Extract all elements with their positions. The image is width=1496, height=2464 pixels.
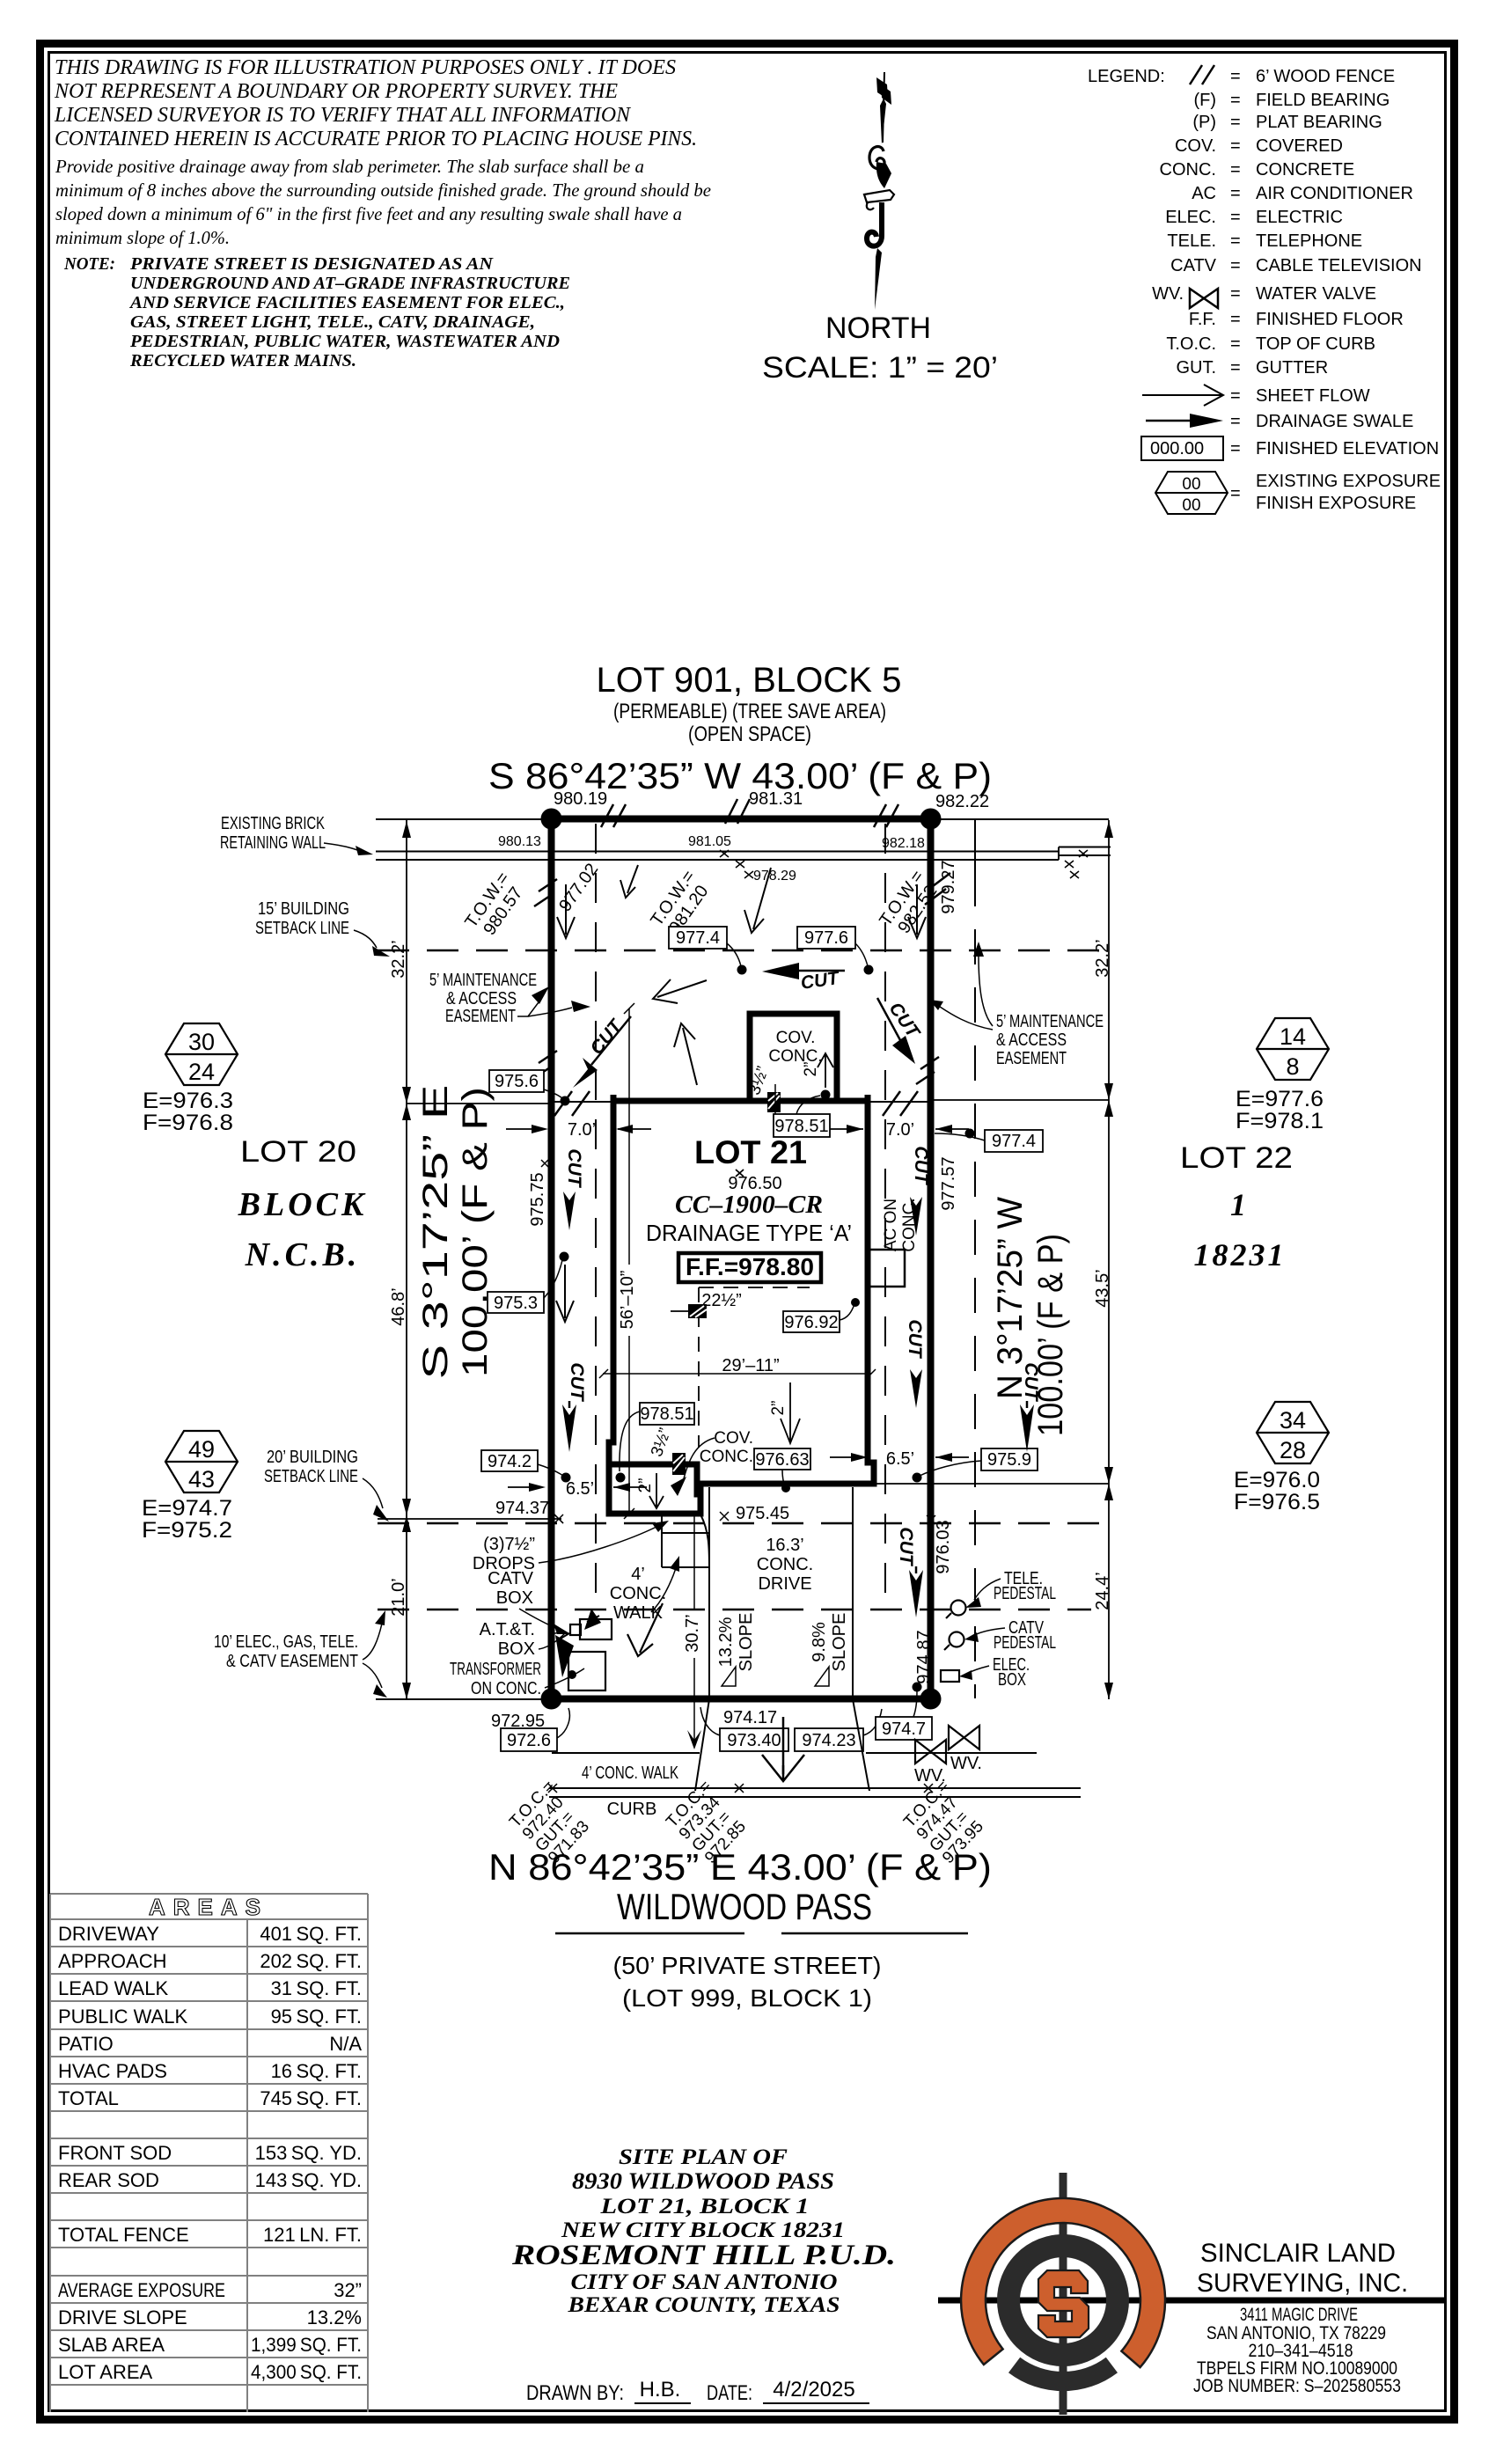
svg-text:974.7: 974.7 — [882, 1720, 926, 1739]
svg-text:975.45: 975.45 — [736, 1504, 789, 1523]
svg-text:977.57: 977.57 — [939, 1156, 958, 1210]
svg-text:CUT: CUT — [911, 1146, 931, 1185]
svg-text:143 SQ. YD.: 143 SQ. YD. — [255, 2169, 362, 2191]
svg-text:30.7’: 30.7’ — [683, 1614, 702, 1652]
svg-text:CONC.: CONC. — [1160, 160, 1216, 180]
svg-text:TOTAL FENCE: TOTAL FENCE — [58, 2224, 189, 2246]
svg-text:14: 14 — [1280, 1023, 1306, 1050]
svg-text:TOP OF CURB: TOP OF CURB — [1256, 334, 1375, 354]
svg-text:153 SQ. YD.: 153 SQ. YD. — [255, 2142, 362, 2164]
svg-text:975.6: 975.6 — [495, 1072, 539, 1091]
svg-text:CABLE TELEVISION: CABLE TELEVISION — [1256, 256, 1422, 275]
svg-text:975.9: 975.9 — [987, 1450, 1031, 1470]
svg-text:=: = — [1230, 484, 1241, 503]
svg-text:976.63: 976.63 — [755, 1450, 809, 1470]
svg-text:00: 00 — [1182, 496, 1200, 515]
svg-text:31 SQ. FT.: 31 SQ. FT. — [271, 1977, 362, 1999]
svg-text:973.40: 973.40 — [727, 1731, 781, 1750]
svg-text:LOT 22: LOT 22 — [1180, 1141, 1293, 1175]
svg-text:N 86°42’35” E 43.00’ (F & P): N 86°42’35” E 43.00’ (F & P) — [488, 1846, 992, 1888]
svg-text:(LOT 999, BLOCK 1): (LOT 999, BLOCK 1) — [622, 1984, 872, 2012]
svg-text:121 LN. FT.: 121 LN. FT. — [263, 2224, 362, 2246]
svg-text:977.4: 977.4 — [676, 928, 720, 948]
svg-text:9.8%: 9.8% — [810, 1622, 829, 1662]
svg-text:=: = — [1230, 184, 1241, 203]
svg-text:DATE:: DATE: — [707, 2381, 752, 2405]
svg-text:DRIVEWAY: DRIVEWAY — [58, 1923, 159, 1945]
svg-text:DRIVE SLOPE: DRIVE SLOPE — [58, 2306, 187, 2328]
svg-text:5’ MAINTENANCE: 5’ MAINTENANCE — [996, 1012, 1104, 1031]
svg-text:974.2: 974.2 — [488, 1452, 532, 1471]
svg-text:974.37: 974.37 — [495, 1499, 549, 1518]
svg-text:202 SQ. FT.: 202 SQ. FT. — [260, 1950, 362, 1972]
svg-text:CONC.: CONC. — [757, 1555, 813, 1574]
svg-text:DRAINAGE SWALE: DRAINAGE SWALE — [1256, 412, 1413, 431]
svg-text:TELE.: TELE. — [1167, 231, 1216, 251]
svg-text:UNDERGROUND AND AT–GRADE INFRA: UNDERGROUND AND AT–GRADE INFRASTRUCTURE — [130, 274, 570, 293]
svg-text:32”: 32” — [334, 2279, 362, 2301]
svg-text:NEW CITY BLOCK 18231: NEW CITY BLOCK 18231 — [561, 2218, 845, 2242]
svg-text:5’ MAINTENANCE: 5’ MAINTENANCE — [429, 971, 537, 990]
svg-text:SHEET FLOW: SHEET FLOW — [1256, 386, 1370, 406]
svg-text:RETAINING WALL: RETAINING WALL — [220, 833, 326, 853]
svg-text:=: = — [1230, 113, 1241, 132]
svg-text:EXISTING BRICK: EXISTING BRICK — [221, 814, 325, 833]
svg-text:=: = — [1230, 439, 1241, 458]
svg-text:NOT REPRESENT A BOUNDARY OR PR: NOT REPRESENT A BOUNDARY OR PROPERTY SUR… — [54, 80, 618, 103]
svg-text:46.8’: 46.8’ — [389, 1287, 408, 1325]
svg-text:=: = — [1230, 412, 1241, 431]
svg-text:H.B.: H.B. — [640, 2378, 681, 2402]
svg-text:981.05: 981.05 — [688, 834, 731, 849]
svg-text:& ACCESS: & ACCESS — [996, 1030, 1067, 1050]
svg-text:=: = — [1230, 284, 1241, 304]
svg-text:6’ WOOD FENCE: 6’ WOOD FENCE — [1256, 67, 1395, 86]
svg-text:(PERMEABLE) (TREE SAVE AREA): (PERMEABLE) (TREE SAVE AREA) — [613, 700, 886, 723]
svg-text:978.29: 978.29 — [753, 869, 796, 884]
svg-text:APPROACH: APPROACH — [58, 1950, 166, 1972]
svg-text:E=976.3: E=976.3 — [143, 1089, 233, 1113]
svg-text:28: 28 — [1280, 1437, 1306, 1463]
svg-text:2”: 2” — [802, 1062, 820, 1077]
svg-text:DRAWN BY:: DRAWN BY: — [526, 2381, 624, 2405]
svg-text:& ACCESS: & ACCESS — [446, 989, 517, 1008]
svg-text:43: 43 — [188, 1466, 215, 1492]
svg-text:974.17: 974.17 — [723, 1708, 777, 1727]
svg-text:976.92: 976.92 — [784, 1313, 838, 1332]
svg-text:CURB: CURB — [607, 1800, 657, 1819]
svg-text:WV.: WV. — [1152, 284, 1184, 304]
svg-text:E=974.7: E=974.7 — [142, 1496, 232, 1521]
svg-text:00: 00 — [1182, 475, 1200, 494]
svg-text:8: 8 — [1286, 1053, 1299, 1080]
svg-text:SCALE: 1” = 20’: SCALE: 1” = 20’ — [762, 351, 998, 385]
svg-text:ON CONC.: ON CONC. — [471, 1679, 541, 1698]
svg-text:DRAINAGE TYPE ‘A’: DRAINAGE TYPE ‘A’ — [646, 1220, 852, 1246]
svg-text:GUTTER: GUTTER — [1256, 358, 1328, 378]
svg-text:CONC.: CONC. — [610, 1584, 666, 1603]
svg-text:SLAB AREA: SLAB AREA — [58, 2334, 165, 2356]
svg-text:PEDESTAL: PEDESTAL — [994, 1584, 1056, 1603]
svg-text:PUBLIC WALK: PUBLIC WALK — [58, 2006, 187, 2028]
svg-text:SITE PLAN OF: SITE PLAN OF — [619, 2145, 788, 2169]
svg-text:LEGEND:: LEGEND: — [1088, 67, 1165, 86]
svg-text:22½”: 22½” — [701, 1291, 742, 1310]
svg-text:CUT: CUT — [586, 1015, 627, 1059]
svg-text:FINISHED ELEVATION: FINISHED ELEVATION — [1256, 439, 1439, 458]
svg-text:=: = — [1230, 160, 1241, 180]
svg-text:PEDESTAL: PEDESTAL — [994, 1633, 1056, 1653]
svg-text:13.2%: 13.2% — [307, 2306, 362, 2328]
svg-text:BLOCK: BLOCK — [238, 1186, 368, 1223]
svg-text:4,300 SQ. FT.: 4,300 SQ. FT. — [251, 2361, 362, 2383]
svg-text:HVAC PADS: HVAC PADS — [58, 2060, 167, 2082]
svg-text:F.F.: F.F. — [1189, 310, 1216, 329]
svg-text:E=977.6: E=977.6 — [1236, 1087, 1324, 1111]
svg-text:24: 24 — [188, 1059, 215, 1085]
svg-text:FIELD BEARING: FIELD BEARING — [1256, 91, 1390, 110]
svg-text:974.23: 974.23 — [802, 1731, 855, 1750]
svg-text:CITY OF SAN ANTONIO: CITY OF SAN ANTONIO — [571, 2270, 838, 2294]
svg-text:3411 MAGIC DRIVE: 3411 MAGIC DRIVE — [1240, 2305, 1358, 2325]
svg-text:95 SQ. FT.: 95 SQ. FT. — [271, 2006, 362, 2028]
svg-text:F=976.5: F=976.5 — [1234, 1490, 1320, 1514]
svg-text:7.0’: 7.0’ — [568, 1120, 596, 1140]
svg-text:SETBACK LINE: SETBACK LINE — [255, 919, 349, 938]
svg-text:8930 WILDWOOD PASS: 8930 WILDWOOD PASS — [572, 2168, 834, 2194]
svg-text:30: 30 — [188, 1029, 215, 1055]
svg-text:ELEC.: ELEC. — [1165, 208, 1216, 227]
svg-text:=: = — [1230, 334, 1241, 354]
svg-text:=: = — [1230, 231, 1241, 251]
svg-text:ROSEMONT HILL P.U.D.: ROSEMONT HILL P.U.D. — [511, 2240, 896, 2271]
svg-text:AND SERVICE FACILITIES EASEMEN: AND SERVICE FACILITIES EASEMENT FOR ELEC… — [128, 293, 565, 312]
svg-text:CUT: CUT — [1021, 1362, 1041, 1402]
svg-text:745 SQ. FT.: 745 SQ. FT. — [260, 2087, 362, 2109]
svg-text:WATER VALVE: WATER VALVE — [1256, 284, 1376, 304]
svg-text:Provide positive drainage away: Provide positive drainage away from slab… — [55, 156, 644, 177]
svg-text:F=975.2: F=975.2 — [142, 1518, 232, 1543]
svg-text:2”: 2” — [636, 1478, 655, 1493]
svg-text:(P): (P) — [1192, 113, 1216, 132]
svg-text:SLOPE: SLOPE — [737, 1613, 756, 1672]
svg-text:49: 49 — [188, 1436, 215, 1463]
svg-text:REAR SOD: REAR SOD — [58, 2169, 159, 2191]
svg-text:PATIO: PATIO — [58, 2033, 114, 2055]
svg-text:SURVEYING, INC.: SURVEYING, INC. — [1197, 2269, 1408, 2298]
svg-text:100.00’ (F & P): 100.00’ (F & P) — [456, 1087, 495, 1377]
svg-text:=: = — [1230, 310, 1241, 329]
svg-text:=: = — [1230, 136, 1241, 156]
svg-text:PRIVATE STREET IS DESIGNATED A: PRIVATE STREET IS DESIGNATED AS AN — [129, 254, 495, 274]
svg-text:=: = — [1230, 358, 1241, 378]
svg-text:LOT AREA: LOT AREA — [58, 2361, 153, 2383]
svg-text:18231: 18231 — [1194, 1237, 1287, 1272]
svg-text:N.C.B.: N.C.B. — [245, 1236, 361, 1273]
svg-text:982.18: 982.18 — [882, 836, 925, 851]
svg-text:AVERAGE EXPOSURE: AVERAGE EXPOSURE — [58, 2279, 225, 2301]
svg-text:16.3’: 16.3’ — [766, 1536, 803, 1555]
svg-text:977.4: 977.4 — [992, 1132, 1036, 1151]
svg-text:4’: 4’ — [631, 1565, 645, 1584]
svg-text:minimum slope of 1.0%.: minimum slope of 1.0%. — [55, 227, 230, 248]
svg-text:CUT: CUT — [905, 1319, 925, 1359]
svg-text:=: = — [1230, 256, 1241, 275]
svg-text:F.F.=978.80: F.F.=978.80 — [686, 1253, 814, 1280]
svg-text:FRONT SOD: FRONT SOD — [58, 2142, 172, 2164]
svg-text:29’–11”: 29’–11” — [722, 1356, 779, 1375]
svg-text:NORTH: NORTH — [825, 312, 931, 345]
svg-text:975.3: 975.3 — [494, 1294, 538, 1313]
svg-text:6.5’: 6.5’ — [566, 1479, 594, 1499]
svg-text:SLOPE: SLOPE — [830, 1613, 849, 1672]
svg-text:F=976.8: F=976.8 — [143, 1111, 233, 1135]
svg-text:GAS, STREET LIGHT, TELE., CATV: GAS, STREET LIGHT, TELE., CATV, DRAINAGE… — [130, 312, 535, 332]
svg-text:WV.: WV. — [950, 1754, 982, 1773]
svg-text:978.51: 978.51 — [774, 1117, 828, 1136]
svg-text:=: = — [1230, 67, 1241, 86]
svg-text:981.31: 981.31 — [749, 789, 803, 809]
svg-text:DROPS: DROPS — [473, 1554, 535, 1573]
svg-text:DRIVE: DRIVE — [758, 1574, 811, 1594]
svg-text:13.2%: 13.2% — [716, 1617, 736, 1667]
svg-text:COV.: COV. — [714, 1429, 753, 1448]
svg-text:980.19: 980.19 — [554, 789, 607, 809]
svg-text:15’ BUILDING: 15’ BUILDING — [258, 899, 349, 919]
svg-text:978.51: 978.51 — [640, 1404, 693, 1424]
svg-text:21.0’: 21.0’ — [389, 1578, 408, 1616]
svg-text:CUT: CUT — [799, 968, 841, 994]
svg-text:4/2/2025: 4/2/2025 — [773, 2378, 854, 2402]
svg-text:(3)7½”: (3)7½” — [483, 1535, 535, 1554]
svg-text:LEAD WALK: LEAD WALK — [58, 1977, 168, 1999]
svg-text:BOX: BOX — [998, 1670, 1026, 1690]
svg-text:CONTAINED HEREIN IS ACCURATE P: CONTAINED HEREIN IS ACCURATE PRIOR TO PL… — [55, 128, 697, 150]
svg-text:A.T.&T.: A.T.&T. — [480, 1620, 535, 1639]
svg-text:E=976.0: E=976.0 — [1234, 1468, 1320, 1492]
svg-text:LOT 21, BLOCK 1: LOT 21, BLOCK 1 — [599, 2195, 809, 2218]
svg-text:975.75: 975.75 — [528, 1172, 547, 1226]
svg-text:WILDWOOD PASS: WILDWOOD PASS — [617, 1886, 872, 1927]
svg-text:FINISHED FLOOR: FINISHED FLOOR — [1256, 310, 1404, 329]
svg-text:976.03: 976.03 — [934, 1520, 953, 1573]
svg-text:BEXAR COUNTY, TEXAS: BEXAR COUNTY, TEXAS — [567, 2293, 840, 2317]
svg-text:TOTAL: TOTAL — [58, 2087, 119, 2109]
svg-text:CONC.: CONC. — [700, 1448, 753, 1466]
svg-text:=: = — [1230, 386, 1241, 406]
svg-text:& CATV EASEMENT: & CATV EASEMENT — [226, 1652, 358, 1671]
svg-text:N/A: N/A — [329, 2033, 362, 2055]
svg-text:EXISTING EXPOSURE: EXISTING EXPOSURE — [1256, 472, 1441, 491]
svg-text:1: 1 — [1230, 1187, 1246, 1222]
svg-text:24.4’: 24.4’ — [1093, 1572, 1112, 1610]
svg-text:CC–1900–CR: CC–1900–CR — [675, 1191, 823, 1219]
svg-text:sloped down a minimum of 6" in: sloped down a minimum of 6" in the first… — [55, 203, 682, 224]
svg-text:AREAS: AREAS — [149, 1894, 268, 1920]
svg-text:LOT 901, BLOCK 5: LOT 901, BLOCK 5 — [597, 661, 902, 700]
svg-text:CUT: CUT — [896, 1527, 916, 1566]
svg-text:=: = — [1230, 208, 1241, 227]
svg-text:F=978.1: F=978.1 — [1236, 1109, 1324, 1133]
svg-text:T.O.C.: T.O.C. — [1166, 334, 1216, 354]
svg-text:10’ ELEC., GAS, TELE.: 10’ ELEC., GAS, TELE. — [214, 1632, 358, 1652]
svg-text:972.6: 972.6 — [507, 1731, 551, 1750]
svg-text:974.87: 974.87 — [914, 1630, 934, 1683]
svg-text:LICENSED SURVEYOR IS TO VERIFY: LICENSED SURVEYOR IS TO VERIFY THAT ALL … — [54, 104, 632, 127]
svg-text:ELECTRIC: ELECTRIC — [1256, 208, 1343, 227]
svg-text:EASEMENT: EASEMENT — [996, 1049, 1067, 1068]
svg-text:980.13: 980.13 — [498, 834, 541, 849]
svg-text:CUT: CUT — [567, 1362, 587, 1402]
svg-text:SETBACK LINE: SETBACK LINE — [264, 1467, 358, 1486]
svg-text:EASEMENT: EASEMENT — [445, 1007, 516, 1026]
svg-text:979.27: 979.27 — [939, 860, 958, 913]
svg-text:100.00’ (F & P): 100.00’ (F & P) — [1031, 1234, 1070, 1436]
svg-text:NOTE:: NOTE: — [63, 254, 115, 274]
svg-text:JOB NUMBER: S–202580553: JOB NUMBER: S–202580553 — [1193, 2376, 1401, 2396]
svg-text:401 SQ. FT.: 401 SQ. FT. — [260, 1923, 362, 1945]
svg-text:AC: AC — [1192, 184, 1216, 203]
svg-text:2”: 2” — [769, 1401, 788, 1416]
svg-text:6.5’: 6.5’ — [886, 1449, 914, 1469]
svg-text:SINCLAIR LAND: SINCLAIR LAND — [1200, 2239, 1396, 2268]
svg-text:982.22: 982.22 — [935, 792, 989, 811]
svg-text:PLAT BEARING: PLAT BEARING — [1256, 113, 1382, 132]
svg-text:CUT: CUT — [564, 1148, 584, 1188]
svg-text:COVERED: COVERED — [1256, 136, 1343, 156]
svg-text:4’ CONC. WALK: 4’ CONC. WALK — [582, 1764, 678, 1783]
svg-text:AC ON: AC ON — [882, 1199, 900, 1251]
svg-text:56’–10”: 56’–10” — [618, 1271, 637, 1330]
svg-text:1,399 SQ. FT.: 1,399 SQ. FT. — [251, 2334, 362, 2356]
svg-text:(50’ PRIVATE STREET): (50’ PRIVATE STREET) — [613, 1952, 882, 1979]
svg-text:=: = — [1230, 91, 1241, 110]
svg-text:RECYCLED WATER MAINS.: RECYCLED WATER MAINS. — [129, 351, 356, 370]
svg-text:(OPEN SPACE): (OPEN SPACE) — [688, 722, 811, 746]
svg-text:THIS DRAWING IS FOR ILLUSTRATI: THIS DRAWING IS FOR ILLUSTRATION PURPOSE… — [55, 56, 676, 79]
svg-text:COV.: COV. — [1175, 136, 1216, 156]
svg-text:LOT 20: LOT 20 — [240, 1135, 356, 1169]
svg-text:FINISH EXPOSURE: FINISH EXPOSURE — [1256, 494, 1416, 513]
svg-text:7.0’: 7.0’ — [886, 1120, 914, 1140]
svg-text:AIR CONDITIONER: AIR CONDITIONER — [1256, 184, 1413, 203]
svg-text:GUT.: GUT. — [1176, 358, 1216, 378]
svg-text:977.6: 977.6 — [804, 928, 848, 948]
svg-text:32.2’: 32.2’ — [1093, 939, 1112, 977]
svg-text:TRANSFORMER: TRANSFORMER — [450, 1660, 541, 1679]
svg-text:000.00: 000.00 — [1150, 439, 1204, 458]
svg-text:CONCRETE: CONCRETE — [1256, 160, 1354, 180]
svg-text:32.2’: 32.2’ — [389, 940, 408, 978]
svg-text:PEDESTRIAN, PUBLIC WATER, WAST: PEDESTRIAN, PUBLIC WATER, WASTEWATER AND — [129, 332, 560, 351]
svg-text:43.5’: 43.5’ — [1093, 1269, 1112, 1307]
svg-text:20’ BUILDING: 20’ BUILDING — [267, 1448, 358, 1467]
svg-text:CATV: CATV — [1170, 256, 1217, 275]
svg-text:3½”: 3½” — [648, 1426, 675, 1459]
svg-text:BOX: BOX — [498, 1639, 535, 1659]
svg-text:TELEPHONE: TELEPHONE — [1256, 231, 1362, 251]
svg-text:BOX: BOX — [496, 1588, 533, 1608]
svg-text:34: 34 — [1280, 1407, 1306, 1434]
svg-text:S 3°17’25” E: S 3°17’25” E — [416, 1085, 455, 1380]
svg-text:(F): (F) — [1193, 91, 1216, 110]
svg-text:16 SQ. FT.: 16 SQ. FT. — [271, 2060, 362, 2082]
svg-text:COV.: COV. — [776, 1029, 816, 1047]
svg-text:minimum of 8 inches above the: minimum of 8 inches above the surroundin… — [55, 180, 711, 201]
svg-text:LOT 21: LOT 21 — [694, 1134, 807, 1170]
